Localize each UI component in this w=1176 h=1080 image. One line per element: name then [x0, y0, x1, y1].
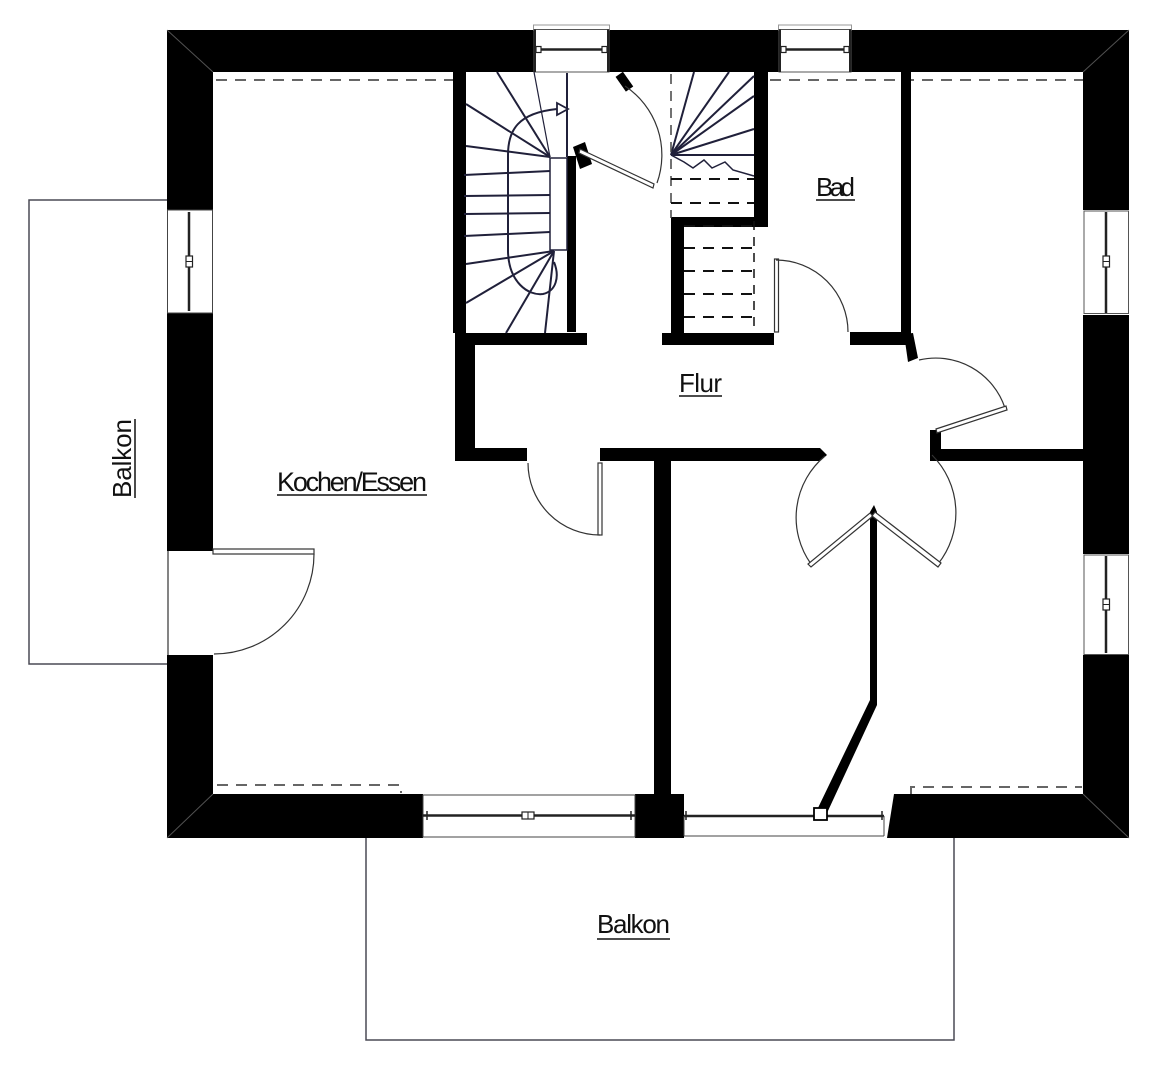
svg-text:Balkon: Balkon — [597, 909, 670, 939]
svg-text:Kochen/Essen: Kochen/Essen — [277, 467, 427, 497]
svg-text:Bad: Bad — [816, 172, 855, 202]
svg-text:Balkon: Balkon — [107, 419, 137, 498]
svg-text:Flur: Flur — [679, 368, 722, 398]
